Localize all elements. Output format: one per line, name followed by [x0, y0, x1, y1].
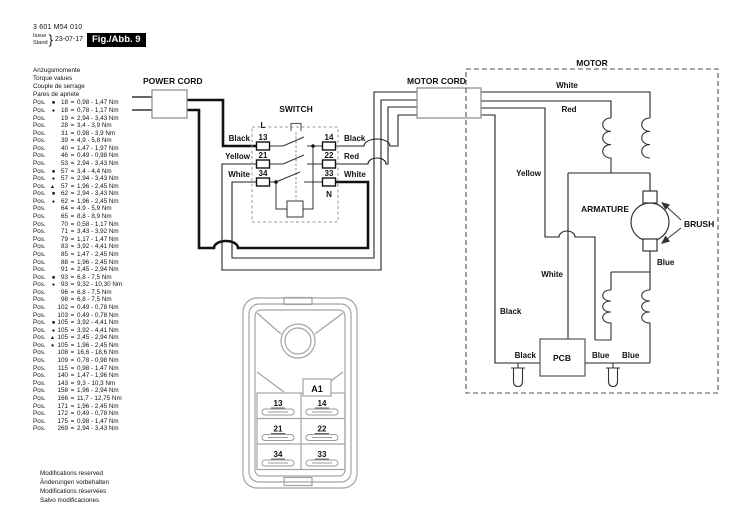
terminal-34: [257, 178, 270, 186]
pcb-label: PCB: [553, 353, 571, 363]
label-in-yellow: Yellow: [225, 152, 251, 161]
label-terminal-21: 21: [259, 151, 268, 160]
label-blue-pcb2: Blue: [622, 351, 640, 360]
spade-connector-left-icon: [511, 363, 525, 387]
label-black-vertical: Black: [500, 307, 522, 316]
label-a1: A1: [311, 384, 323, 394]
terminal-22: [323, 160, 336, 168]
label-white-tap: White: [541, 270, 563, 279]
wire-motor-red: [481, 101, 611, 118]
capacitor-box-icon: [287, 201, 303, 217]
brush-label: BRUSH: [684, 219, 714, 229]
field-coil-top-right-icon: [642, 118, 650, 158]
power-cord-label: POWER CORD: [143, 76, 203, 86]
label-terminal-14: 14: [325, 133, 334, 142]
label-out-red: Red: [344, 152, 359, 161]
label-out-black: Black: [344, 134, 366, 143]
power-cord-group: POWER CORD: [132, 76, 203, 118]
wire-motor-yellow: [481, 108, 595, 340]
label-white-top: White: [556, 81, 578, 90]
motor-cord-label: MOTOR CORD: [407, 76, 466, 86]
terminal-13: [257, 142, 270, 150]
label-in-white: White: [228, 170, 250, 179]
motor-cord-group: MOTOR CORD: [407, 76, 481, 118]
schematic-page: 3 601 M54 010 Issue Stand } 23-07-17 Fig…: [0, 0, 750, 530]
label-terminal-33: 33: [325, 169, 334, 178]
spade-connector-right-icon: [606, 363, 620, 387]
rear-label-14: 14: [318, 399, 327, 408]
motor-label: MOTOR: [576, 58, 607, 68]
label-terminal-34: 34: [259, 169, 268, 178]
terminal-33: [323, 178, 336, 186]
rear-label-13: 13: [274, 399, 283, 408]
switch-group: SWITCH L 13 2: [225, 104, 366, 222]
motor-boundary: [466, 69, 718, 393]
label-terminal-13: 13: [259, 133, 268, 142]
wire-motor-black: [481, 115, 540, 363]
switch-rear-view: A1 13 14 21 22 34 33: [243, 298, 357, 489]
armature-label: ARMATURE: [581, 204, 629, 214]
terminal-14: [323, 142, 336, 150]
switch-housing: [243, 298, 357, 489]
junction-dot-14: [311, 144, 315, 148]
label-terminal-l: L: [261, 121, 266, 130]
brush-top-icon: [643, 191, 657, 203]
wiring-diagram: POWER CORD MOTOR CORD MOTOR ARMATURE: [0, 0, 750, 530]
power-plug-prongs: [132, 97, 152, 110]
wire-neutral-white: [187, 110, 368, 248]
label-black-pcb: Black: [515, 351, 537, 360]
rear-label-34: 34: [274, 450, 283, 459]
power-cord-box: [152, 90, 187, 118]
label-out-white: White: [344, 170, 366, 179]
junction-dot-34: [274, 180, 278, 184]
switch-label: SWITCH: [279, 104, 313, 114]
field-coil-top-left-icon: [603, 118, 611, 173]
label-in-black: Black: [229, 134, 251, 143]
label-yellow: Yellow: [516, 169, 542, 178]
capacitor-leads: [276, 146, 313, 209]
field-coil-bottom-right-icon: [642, 290, 650, 363]
brush-bottom-icon: [643, 239, 657, 251]
armature-icon: [631, 203, 669, 241]
terminal-21: [257, 160, 270, 168]
field-coils: [595, 118, 650, 363]
label-terminal-n: N: [326, 190, 332, 199]
label-terminal-22: 22: [325, 151, 334, 160]
rear-label-33: 33: [318, 450, 327, 459]
mount-boss-outer-icon: [281, 324, 315, 358]
label-red: Red: [561, 105, 576, 114]
rear-label-21: 21: [274, 425, 283, 434]
label-blue-armature: Blue: [657, 258, 675, 267]
rear-label-22: 22: [318, 425, 327, 434]
label-blue-pcb1: Blue: [592, 351, 610, 360]
wires: [187, 92, 650, 363]
field-coil-bottom-left-icon: [595, 290, 611, 340]
mount-boss-inner-icon: [285, 328, 311, 354]
motor-cord-box: [417, 88, 481, 118]
terminal-block-grid: [257, 393, 345, 470]
